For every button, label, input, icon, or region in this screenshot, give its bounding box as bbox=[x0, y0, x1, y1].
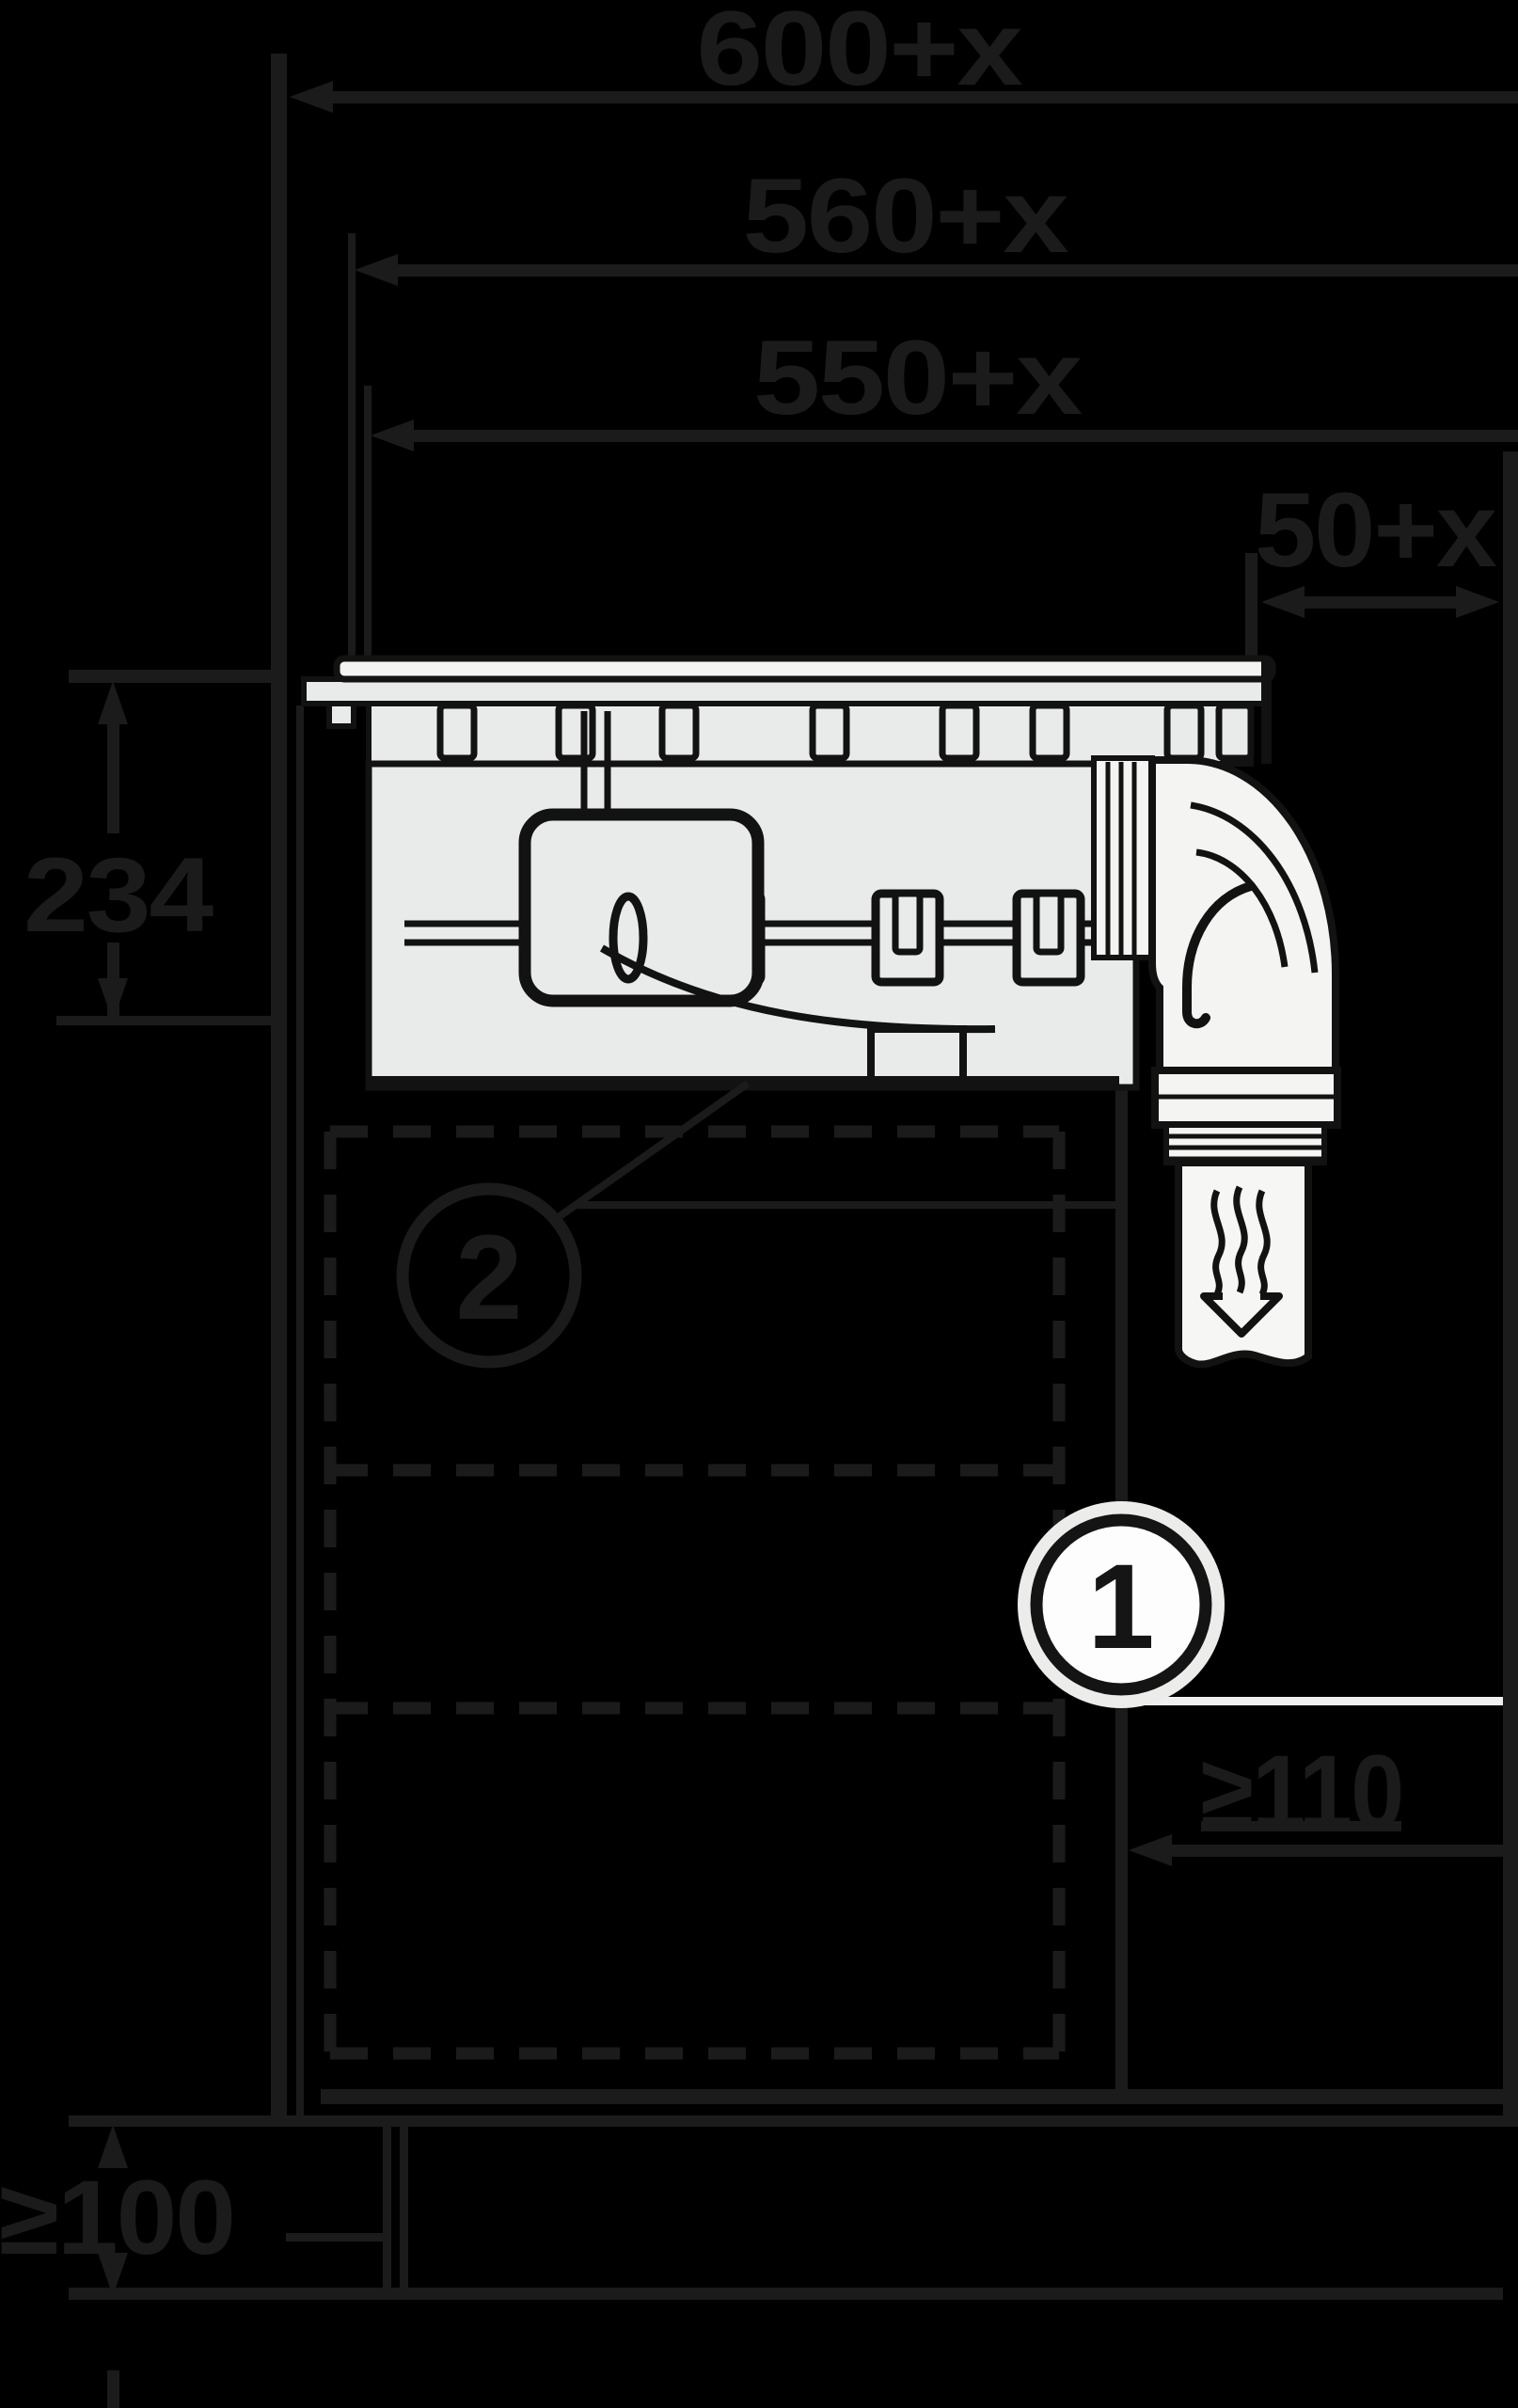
dim-110-arrow-left-icon bbox=[1129, 1834, 1172, 1866]
dim-560-label: 560+x bbox=[743, 157, 1069, 275]
plinth-notch-line bbox=[286, 2233, 384, 2242]
dimension-100: ≥100 bbox=[0, 2125, 234, 2408]
dimension-50: 50+x bbox=[1245, 471, 1499, 658]
cabinet-base-line bbox=[69, 2115, 1503, 2127]
hob-right-edge-line bbox=[1261, 660, 1272, 764]
dim-600-arrow-left-icon bbox=[290, 81, 333, 113]
dim-50-label: 50+x bbox=[1255, 471, 1497, 589]
dim-600-label: 600+x bbox=[697, 0, 1023, 107]
dim-50-extension-line bbox=[1245, 553, 1257, 658]
hob-glass bbox=[337, 658, 1273, 679]
dim-600-line bbox=[327, 91, 1518, 103]
plinth-panel-inner bbox=[400, 2127, 408, 2289]
dim-50-arrow-left-icon bbox=[1261, 586, 1305, 618]
left-inner-wall-line bbox=[296, 705, 304, 2121]
dimension-110: ≥110 bbox=[1129, 1734, 1503, 1866]
installation-diagram: 600+x 560+x 550+x 50+x 234 bbox=[0, 0, 1518, 2408]
dim-234-arrow-up-icon bbox=[98, 681, 128, 724]
dim-234-label: 234 bbox=[24, 836, 213, 954]
dim-550-label: 550+x bbox=[753, 319, 1083, 436]
dim-560-arrow-left-icon bbox=[355, 254, 398, 286]
dim-110-underline bbox=[1201, 1821, 1401, 1831]
right-wall-line bbox=[1503, 451, 1518, 2127]
dimension-234: 234 bbox=[24, 681, 213, 1022]
duct-elbow bbox=[1152, 760, 1336, 1072]
plinth-panel-outer bbox=[383, 2127, 391, 2289]
cabinet-bottom-board bbox=[321, 2089, 1503, 2104]
dim-550-extension-line bbox=[364, 386, 372, 679]
dim-110-label: ≥110 bbox=[1201, 1734, 1403, 1851]
dim-50-arrow-right-icon bbox=[1456, 586, 1499, 618]
dim-550-line bbox=[410, 430, 1518, 442]
dim-234-arrow-down-icon bbox=[98, 978, 128, 1022]
dim-234-line-upper bbox=[107, 721, 119, 833]
clearance-zone-dashed bbox=[330, 1132, 1059, 2053]
left-wall-line bbox=[271, 54, 287, 2123]
callout-2: 2 bbox=[403, 1084, 1115, 1362]
callout-2-leader-diagonal bbox=[553, 1084, 748, 1221]
dim-50-line bbox=[1301, 596, 1460, 609]
dim-110-line bbox=[1168, 1845, 1503, 1857]
callout-1: 1 bbox=[1018, 1501, 1503, 1708]
dim-560-extension-line bbox=[348, 233, 356, 660]
callout-1-label: 1 bbox=[1087, 1540, 1154, 1674]
depth-reference-line bbox=[56, 1016, 286, 1025]
dimension-600: 600+x bbox=[290, 0, 1518, 113]
callout-2-label: 2 bbox=[455, 1211, 522, 1345]
worktop-level-reference-line bbox=[69, 670, 286, 683]
dim-560-line bbox=[394, 264, 1518, 277]
dim-100-line-stub bbox=[107, 2370, 119, 2408]
worktop bbox=[304, 679, 1265, 704]
floor-line bbox=[69, 2288, 1503, 2300]
flange-tab bbox=[329, 704, 354, 726]
dim-550-arrow-left-icon bbox=[371, 420, 414, 451]
callout-1-leader bbox=[1131, 1697, 1503, 1705]
